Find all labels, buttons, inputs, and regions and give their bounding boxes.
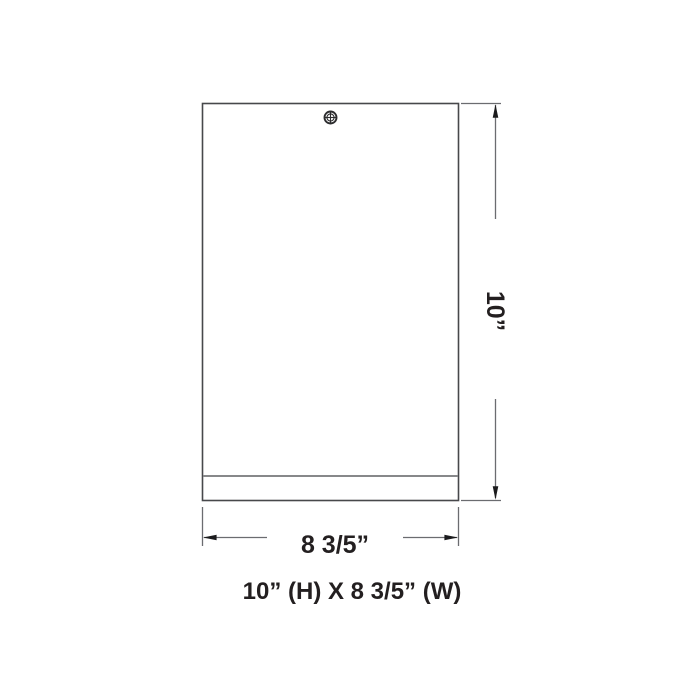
fixture-body xyxy=(203,104,459,501)
dimension-drawing: 10” 8 3/5” 10” (H) X 8 3/5” (W) xyxy=(0,0,700,700)
arrow-up-icon xyxy=(493,104,499,118)
width-dimension: 8 3/5” xyxy=(203,507,459,559)
arrow-left-icon xyxy=(203,535,217,540)
arrow-down-icon xyxy=(493,486,499,500)
arrow-right-icon xyxy=(444,535,458,540)
fixture-outline xyxy=(203,104,459,501)
height-dimension: 10” xyxy=(461,104,509,501)
spec-sheet-page: 10” 8 3/5” 10” (H) X 8 3/5” (W) xyxy=(0,0,700,700)
height-dimension-label: 10” xyxy=(481,291,509,331)
width-dimension-label: 8 3/5” xyxy=(301,531,369,559)
dimension-caption: 10” (H) X 8 3/5” (W) xyxy=(243,578,462,605)
screw-icon xyxy=(325,112,337,124)
